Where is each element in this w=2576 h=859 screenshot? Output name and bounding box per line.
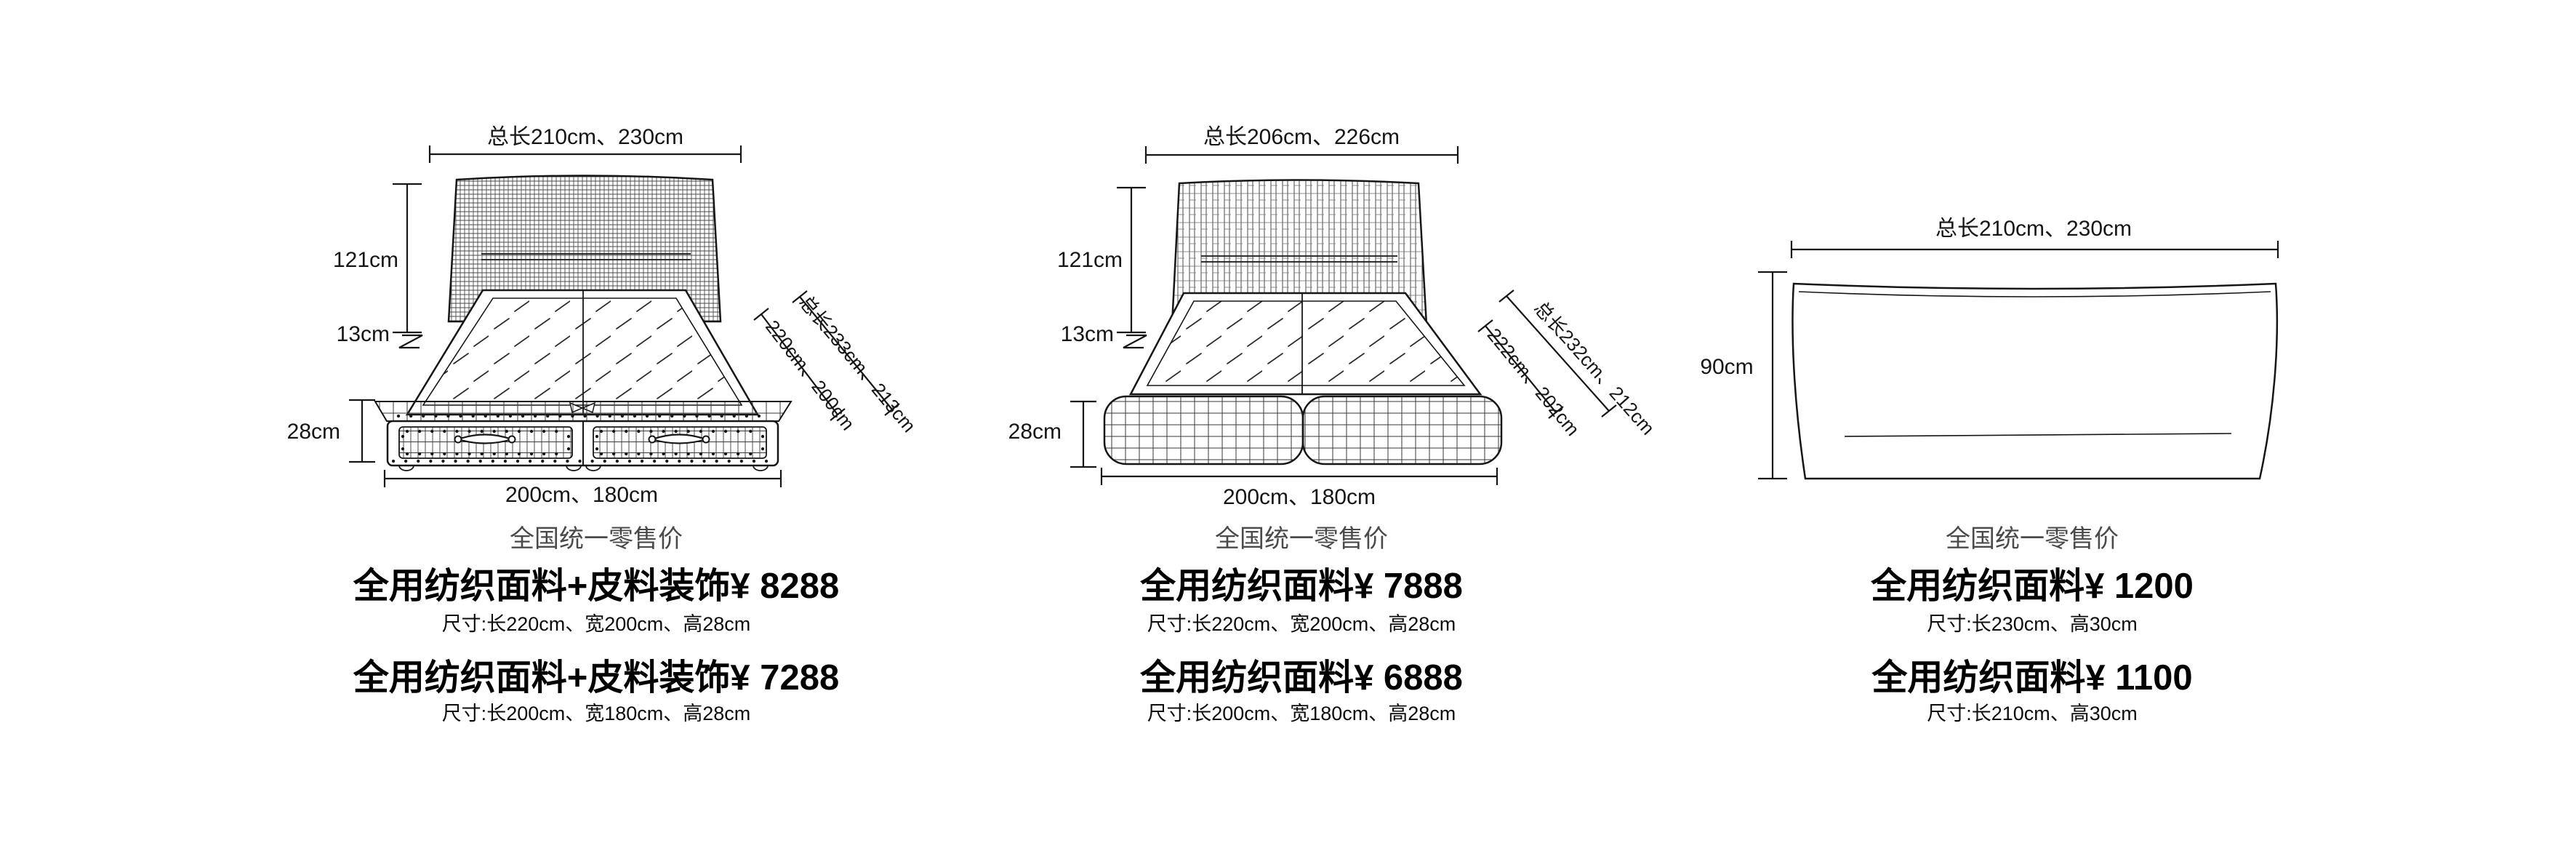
bed1-width-label: 200cm、180cm — [436, 483, 727, 508]
price-line-3a: 全用纺织面料¥ 1200 — [1705, 557, 2359, 609]
size-line-3b: 尺寸:长210cm、高30cm — [1705, 698, 2359, 726]
drawing-headboard-panel — [1758, 241, 2278, 479]
price-line-1b: 全用纺织面料+皮料装饰¥ 7288 — [269, 649, 923, 700]
headboard-total-length-label: 总长210cm、230cm — [1888, 217, 2179, 242]
price-line-2b: 全用纺织面料¥ 6888 — [974, 649, 1629, 700]
size-line-1a: 尺寸:长220cm、宽200cm、高28cm — [269, 608, 923, 636]
bed2-width-label: 200cm、180cm — [1154, 485, 1445, 511]
bed1-headboard-height-label: 121cm — [321, 248, 398, 273]
price-line-1a: 全用纺织面料+皮料装饰¥ 8288 — [269, 557, 923, 609]
bed2-headboard-height-label: 121cm — [1046, 248, 1123, 273]
bed2-total-length-label: 总长206cm、226cm — [1156, 125, 1447, 151]
headboard-height-label: 90cm — [1680, 355, 1774, 380]
bed1-step-height-label: 13cm — [317, 322, 390, 348]
retail-price-heading-3: 全国统一零售价 — [1705, 519, 2359, 554]
price-line-3b: 全用纺织面料¥ 1100 — [1705, 649, 2359, 700]
bed2-base-height-label: 28cm — [989, 420, 1062, 445]
price-line-2a: 全用纺织面料¥ 7888 — [974, 557, 1629, 609]
spec-sheet: 总长210cm、230cm 121cm 13cm 28cm 200cm、180c… — [0, 0, 2576, 859]
size-line-2a: 尺寸:长220cm、宽200cm、高28cm — [974, 608, 1629, 636]
size-line-3a: 尺寸:长230cm、高30cm — [1705, 608, 2359, 636]
bed1-base-height-label: 28cm — [268, 420, 340, 445]
retail-price-heading-2: 全国统一零售价 — [974, 519, 1629, 554]
bed1-total-length-label: 总长210cm、230cm — [440, 125, 731, 151]
bed2-step-height-label: 13cm — [1041, 322, 1114, 348]
size-line-2b: 尺寸:长200cm、宽180cm、高28cm — [974, 698, 1629, 726]
retail-price-heading-1: 全国统一零售价 — [269, 519, 923, 554]
size-line-1b: 尺寸:长200cm、宽180cm、高28cm — [269, 698, 923, 726]
